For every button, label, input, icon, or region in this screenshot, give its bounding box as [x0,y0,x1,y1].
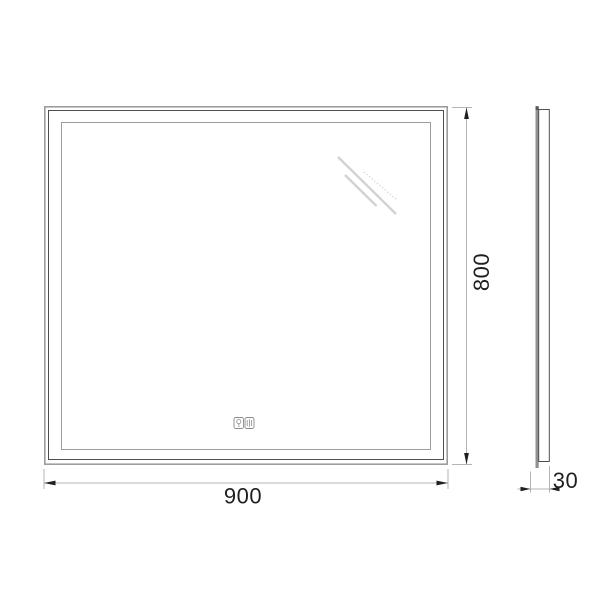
frame-dark-line [49,111,444,460]
led-strip-border [62,123,431,450]
dimension-labels: 900 800 30 [224,253,578,509]
arrowhead [521,487,531,491]
mirror-technical-drawing: 900 800 30 [0,0,615,600]
arrowhead [44,481,56,486]
arrowhead [464,453,469,465]
arrowhead [437,481,449,486]
light-button [234,418,244,429]
frame-outer-line [45,107,447,464]
side-view [536,106,550,468]
defog-button [245,418,254,429]
touch-controls [234,418,254,429]
dimension-width-label: 900 [224,484,262,509]
dimension-height-label: 800 [469,253,494,291]
glare-line [338,157,396,214]
dimension-depth-label: 30 [553,468,578,493]
front-view [45,107,447,464]
arrowhead [464,108,469,120]
side-body [539,110,550,462]
drawing-svg: 900 800 30 [0,0,615,600]
reflection-glare [338,157,397,214]
